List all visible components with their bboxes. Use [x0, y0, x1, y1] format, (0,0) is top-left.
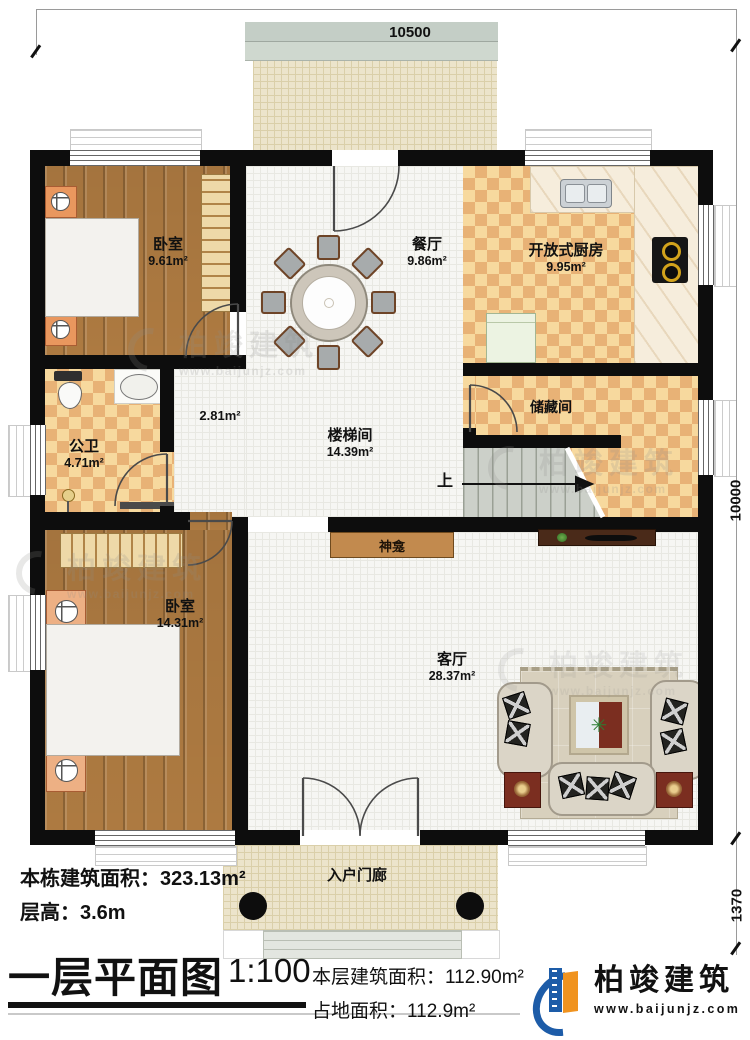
window-sill [70, 129, 202, 151]
terrace-floor [253, 60, 497, 152]
burner [662, 263, 681, 282]
room-label-dining: 餐厅 9.86m² [377, 236, 477, 269]
porch-column [239, 892, 267, 920]
burner [662, 242, 681, 261]
logo-building-orange [563, 971, 578, 1013]
room-label-bedroom1: 卧室 9.61m² [118, 236, 218, 269]
brand-name: 柏竣建筑 [594, 966, 740, 996]
nightstand [45, 186, 77, 218]
wardrobe [60, 533, 183, 568]
bedroom2-door-floor [188, 512, 232, 530]
window-sill [8, 595, 31, 672]
storage-door-floor [463, 376, 476, 428]
wall-storage-south [463, 435, 621, 448]
dim-label-top: 10500 [340, 24, 480, 41]
coffee-table: ✳ [569, 695, 629, 755]
dining-chair [261, 291, 286, 314]
bath-door-floor [160, 452, 174, 506]
console-table [538, 529, 656, 546]
fridge [486, 313, 536, 363]
window-bedroom2-left [30, 595, 46, 670]
shrine-cabinet: 神龛 [330, 532, 454, 558]
stairs-up-label: 上 [433, 472, 457, 491]
plan-scale: 1:100 [228, 952, 311, 990]
cushion [585, 776, 610, 801]
bath-sink-counter [114, 369, 164, 404]
console-decor [585, 535, 637, 541]
toilet-tank [54, 371, 82, 381]
sink-basin [587, 184, 607, 203]
lamp-icon [55, 600, 78, 623]
room-label-living: 客厅 28.37m² [402, 651, 502, 684]
dining-table-center [324, 298, 334, 308]
wall-outer-left [30, 150, 45, 845]
hallway-floor [174, 369, 246, 517]
floor-plan-canvas: 10000 1370 10500 [0, 0, 750, 1040]
porch-column [456, 892, 484, 920]
window-sill [508, 846, 647, 866]
window-kitchen-right [698, 205, 714, 285]
dim-label-right-lower: 1370 [729, 881, 746, 931]
room-label-bathroom: 公卫 4.71m² [34, 438, 134, 471]
lamp-icon [51, 320, 70, 339]
entry-door-opening [300, 830, 420, 845]
note-total-area: 本栋建筑面积：323.13m² [20, 862, 246, 891]
side-table [656, 772, 693, 808]
dining-chair [317, 235, 340, 260]
porch-floor [223, 845, 498, 930]
wall-kitchen-south [463, 363, 698, 376]
room-label-storage: 储藏间 [491, 399, 611, 416]
window-sill [8, 425, 31, 497]
terrace-door-opening [332, 150, 398, 166]
floor-area-line: 本层建筑面积：112.90m² [312, 962, 524, 989]
dining-chair [317, 345, 340, 370]
note-floor-height: 层高：3.6m [20, 896, 126, 925]
room-label-hallway: 2.81m² [170, 408, 270, 424]
dim-line-top [36, 9, 736, 10]
brand-name-block: 柏竣建筑 www.baijunjz.com [594, 966, 740, 1016]
dining-chair [371, 291, 396, 314]
wall-bathroom-south [30, 512, 190, 530]
window-sill [714, 205, 737, 287]
plant-icon: ✳ [591, 713, 608, 738]
room-label-porch: 入户门廊 [307, 867, 407, 885]
window-storage-right [698, 400, 714, 475]
room-label-bedroom2: 卧室 14.31m² [130, 598, 230, 631]
room-label-kitchen: 开放式厨房 9.95m² [496, 242, 636, 275]
window-sill [525, 129, 652, 151]
table-medallion [514, 781, 530, 797]
cushion [558, 772, 585, 799]
title-underline [8, 1002, 306, 1008]
lamp-icon [51, 192, 70, 211]
window-bedroom2-bottom [95, 830, 235, 846]
logo-building-blue [549, 968, 562, 1012]
window-bedroom1-top [70, 150, 200, 166]
fridge-divider [487, 322, 535, 323]
room-label-stairwell: 楼梯间 14.39m² [300, 427, 400, 460]
sink-basin [565, 184, 585, 203]
console-plant [557, 533, 567, 542]
lamp-icon [55, 759, 78, 782]
bath-sink-basin [120, 374, 158, 400]
porch-step-side [460, 930, 500, 959]
plan-title: 一层平面图 [8, 944, 223, 1005]
dim-label-right-upper: 10000 [728, 471, 745, 531]
shrine-label: 神龛 [379, 536, 405, 555]
cushion [660, 728, 687, 755]
kitchen-sink [560, 179, 612, 208]
terrace-roof-band2 [245, 42, 498, 61]
nightstand [45, 314, 77, 346]
brand-website: www.baijunjz.com [594, 1002, 740, 1016]
stove [652, 237, 688, 283]
side-table [504, 772, 541, 808]
wall-bedroom1-south [30, 355, 246, 369]
brand-logo-icon [535, 956, 589, 1030]
window-sill [714, 400, 737, 477]
wall-bedroom1-east [230, 150, 246, 312]
window-kitchen-top [525, 150, 650, 166]
window-living-bottom [508, 830, 645, 846]
table-medallion [666, 781, 682, 797]
bed2 [46, 624, 180, 756]
cushion [504, 720, 531, 747]
wall-bedroom2-east [232, 517, 248, 830]
land-area-line: 占地面积：112.9m² [312, 996, 475, 1023]
dining-table [290, 264, 368, 342]
